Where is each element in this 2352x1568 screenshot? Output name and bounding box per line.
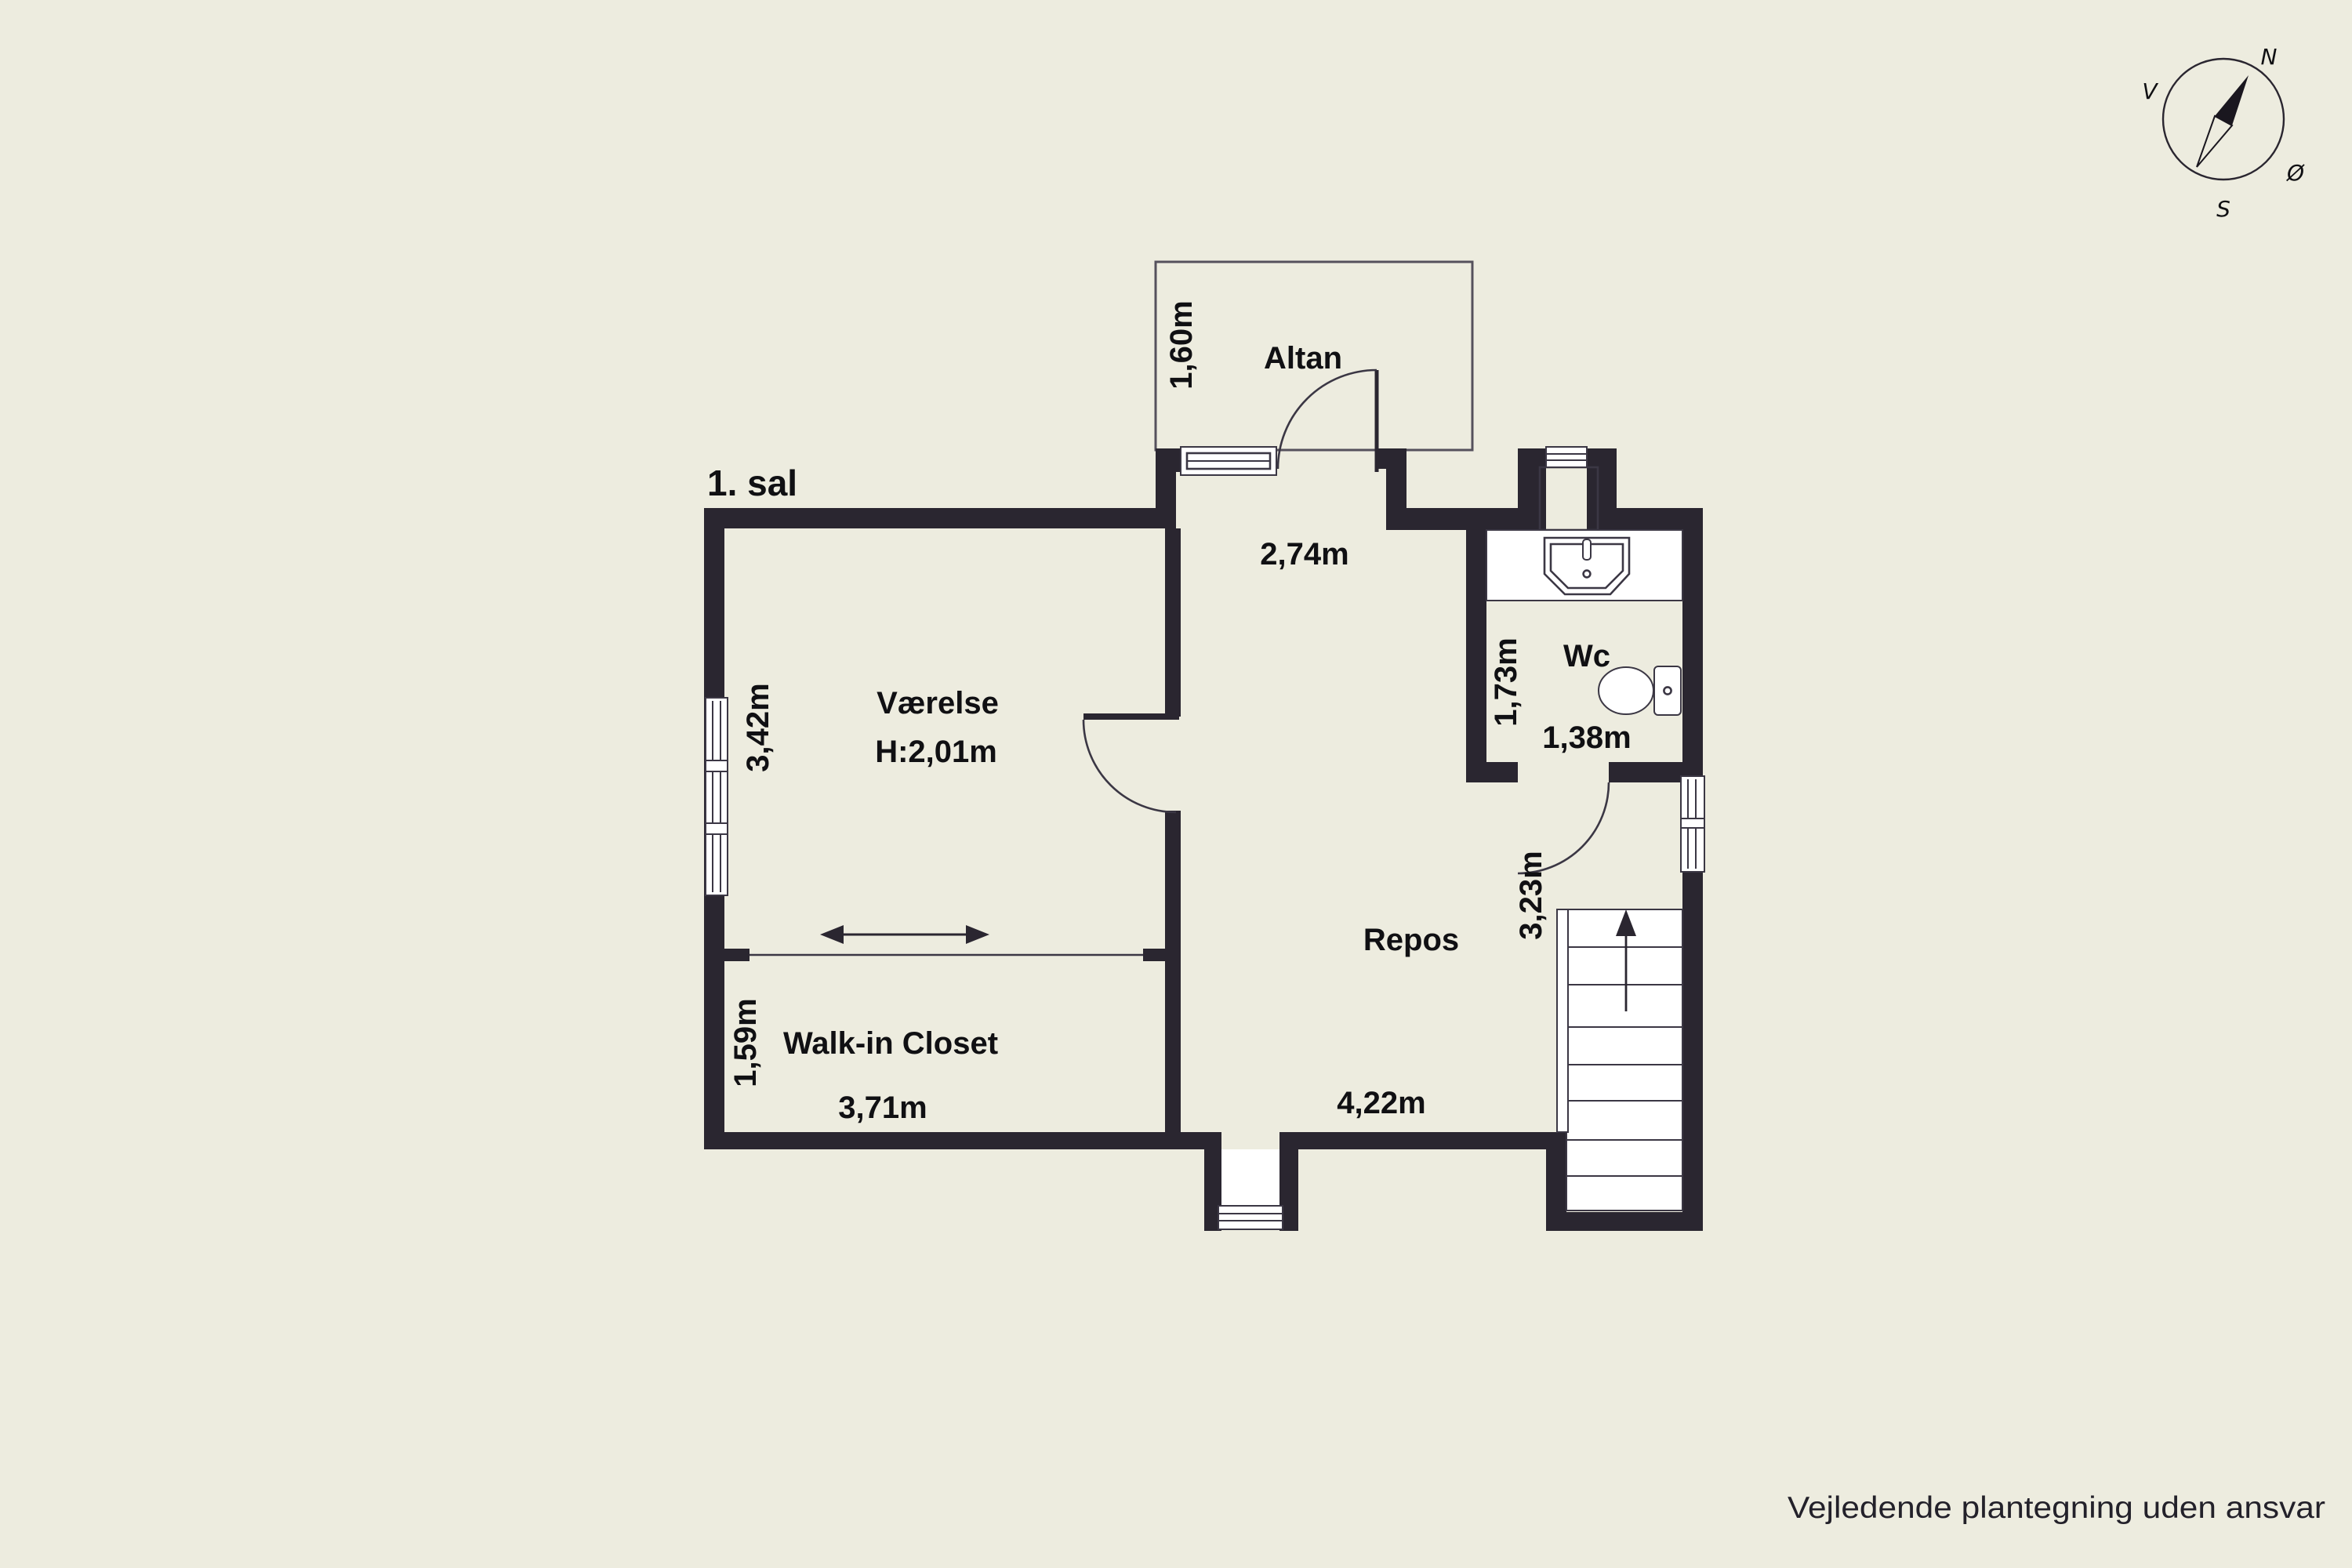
dim-closet-width: 3,71m (838, 1091, 927, 1125)
dim-repos-south: 4,22m (1337, 1086, 1425, 1120)
dim-wc-width: 1,38m (1542, 720, 1631, 755)
wall-interior-upper (1165, 528, 1181, 717)
room-label-vaerelse: Værelse (877, 686, 999, 720)
stair-stringer (1557, 909, 1568, 1132)
window-east (1681, 776, 1704, 872)
dim-altan-depth: 1,60m (1164, 300, 1199, 389)
dim-wc-depth: 1,73m (1489, 637, 1523, 726)
window-wc-bay (1546, 447, 1587, 467)
disclaimer-text: Vejledende plantegning uden ansvar (1788, 1491, 2325, 1525)
wall-stair-south (1566, 1212, 1703, 1231)
room-label-walk-in-closet: Walk-in Closet (783, 1026, 998, 1061)
dim-repos-north: 2,74m (1260, 537, 1348, 572)
compass-east-label: Ø (2286, 160, 2305, 186)
wall-wc-bay-left (1518, 448, 1546, 530)
background (0, 0, 2352, 1568)
wall-south-step (1546, 1132, 1566, 1231)
wall-wc-west (1466, 508, 1486, 782)
wall-east-upper (1682, 508, 1703, 779)
wall-vaerelse-north (704, 508, 1176, 528)
wall-east-lower (1682, 869, 1703, 1231)
wall-interior-lower (1165, 811, 1181, 1132)
floor-plan-canvas: 1. sal Værelse H:2,01m 3,42m Walk-in Clo… (0, 0, 2352, 1568)
dim-vaerelse-west: 3,42m (741, 683, 775, 771)
room-label-repos: Repos (1363, 923, 1459, 957)
page-title: 1. sal (707, 463, 797, 503)
wall-repos-north-left (1156, 448, 1182, 472)
compass-north-label: N (2261, 44, 2278, 70)
compass-west-label: V (2142, 78, 2158, 104)
window-west (706, 698, 728, 895)
room-label-wc: Wc (1563, 639, 1610, 673)
toilet-icon (1599, 666, 1681, 715)
window-entry-bay (1218, 1206, 1283, 1229)
wall-repos-north-right (1375, 448, 1406, 469)
wall-south-left (704, 1132, 1204, 1149)
dim-repos-stair: 3,23m (1514, 851, 1548, 939)
wall-wc-south-left (1466, 762, 1518, 782)
wall-wc-bay-right (1587, 448, 1617, 530)
wall-wc-north-left (1386, 508, 1519, 530)
stairs (1557, 909, 1682, 1210)
wall-south-mid (1298, 1132, 1546, 1149)
room-label-altan: Altan (1264, 341, 1342, 376)
dim-closet-depth: 1,59m (728, 998, 763, 1087)
ceiling-height-vaerelse: H:2,01m (875, 735, 997, 769)
compass-south-label: S (2216, 196, 2230, 222)
entry-bay-niche (1221, 1149, 1279, 1212)
window-north (1181, 447, 1276, 475)
